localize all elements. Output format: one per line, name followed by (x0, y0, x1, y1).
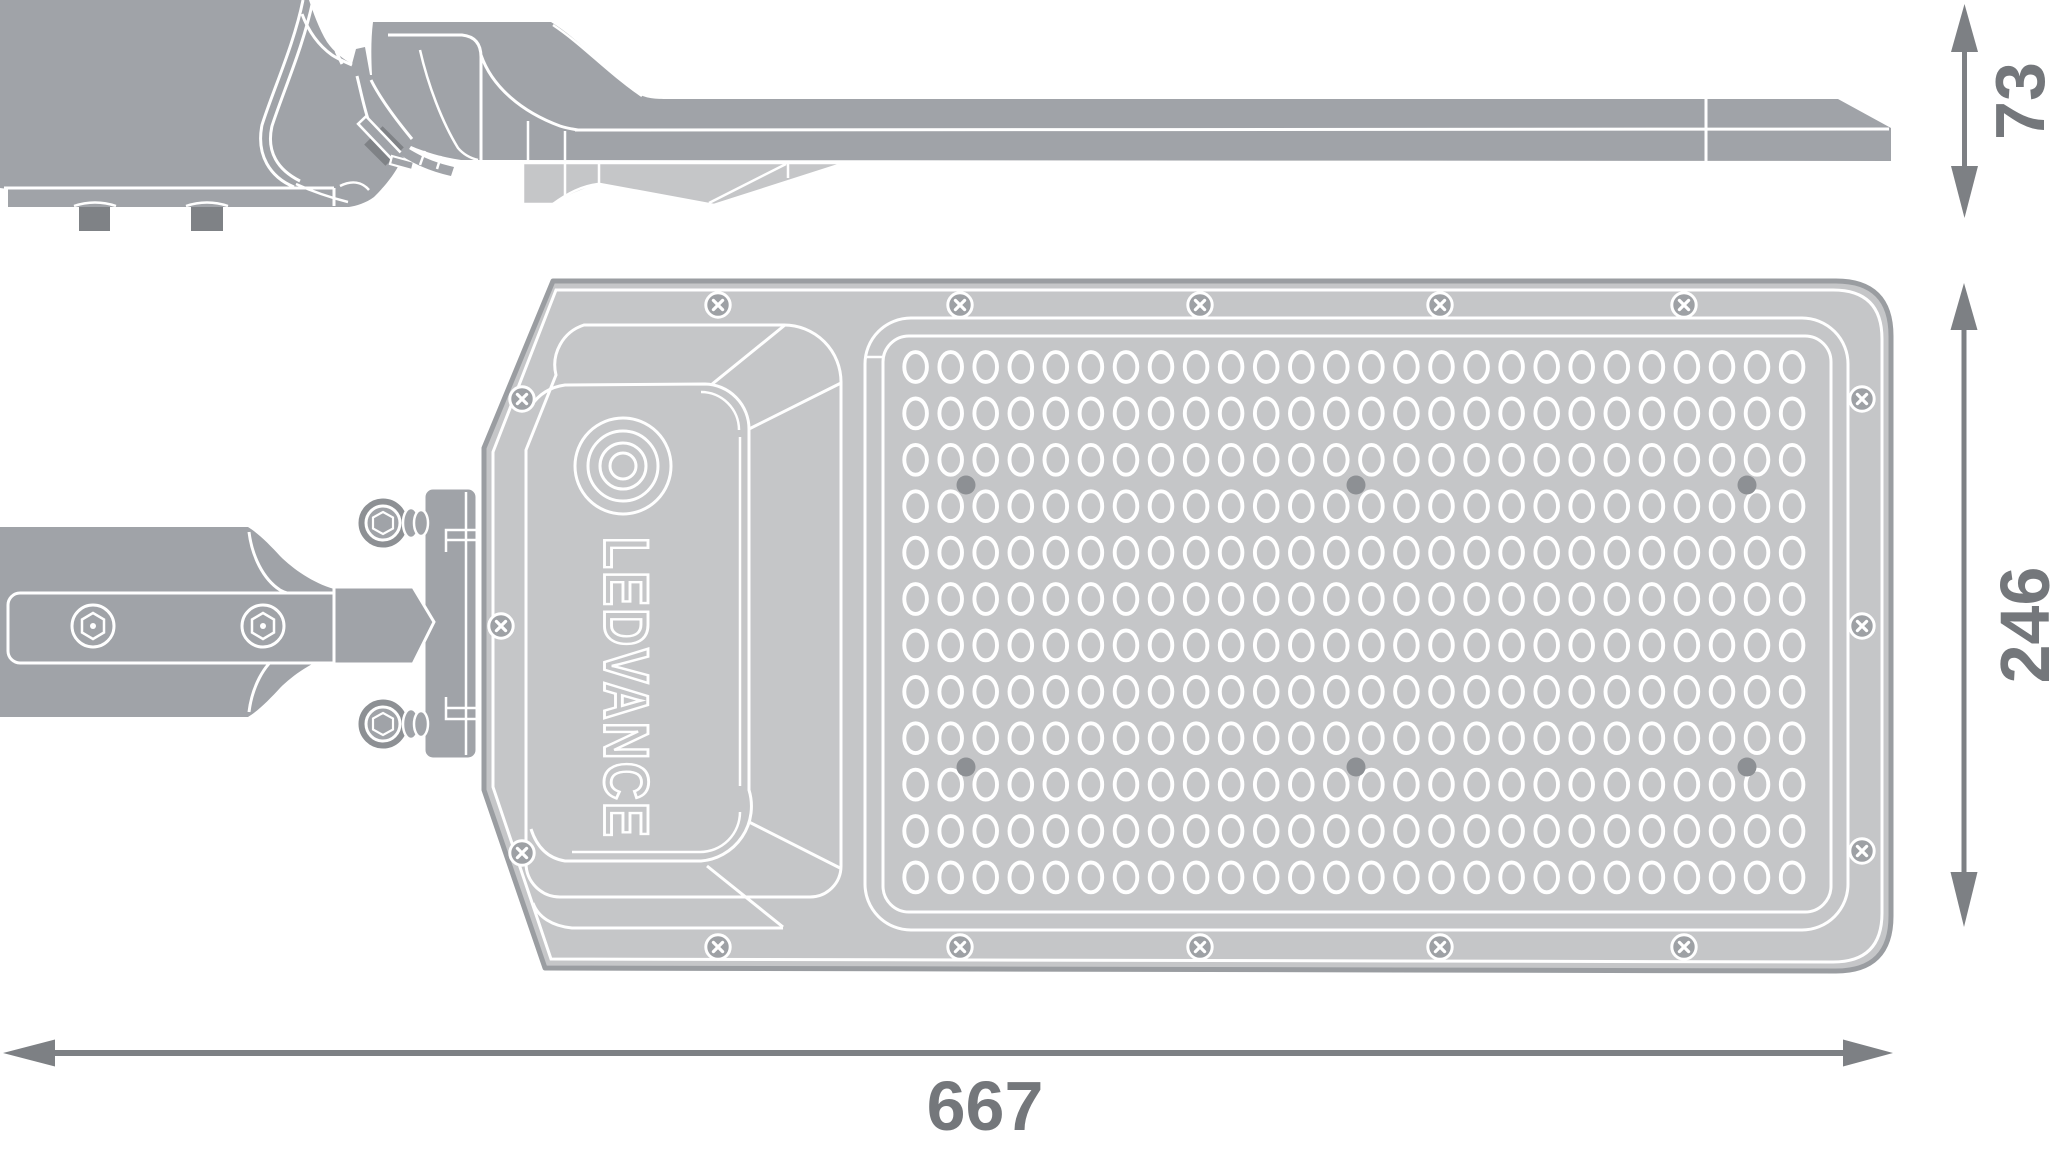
svg-text:LEDVANCE: LEDVANCE (590, 537, 660, 839)
svg-text:246: 246 (1986, 567, 2064, 684)
svg-text:667: 667 (927, 1067, 1044, 1145)
svg-text:73: 73 (1981, 62, 2059, 140)
